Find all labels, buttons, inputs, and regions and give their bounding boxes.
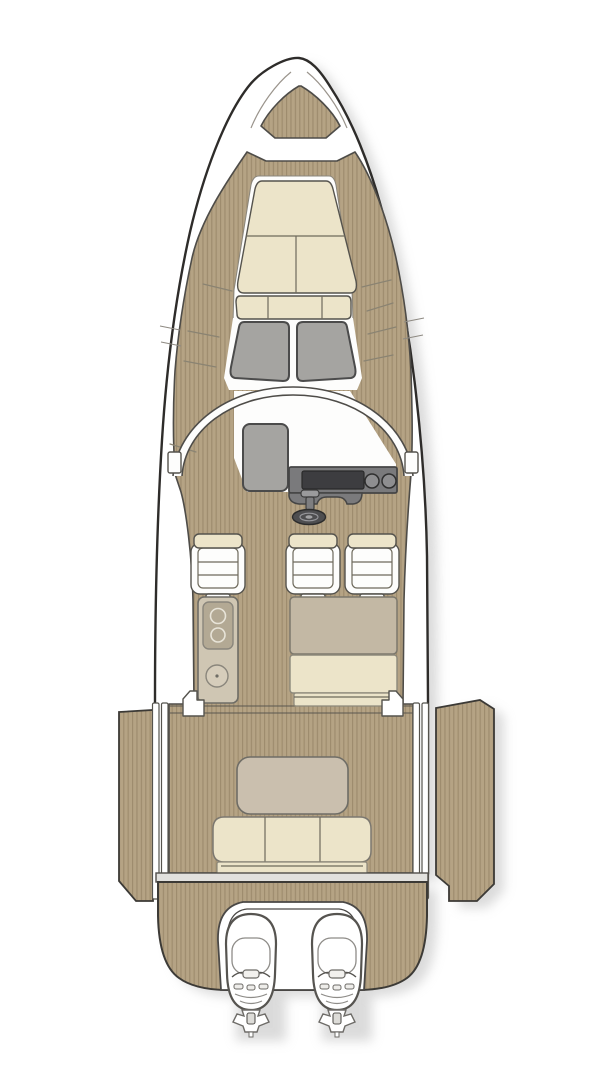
throttle-stem — [306, 497, 314, 510]
hinge-strip — [153, 703, 160, 899]
windshield-foot-left — [168, 452, 181, 473]
transom-rail — [156, 873, 428, 882]
side-terrace-left — [119, 710, 153, 901]
cockpit-bench-cushion — [290, 655, 397, 693]
stove-burner — [211, 609, 226, 624]
boat-deck-plan — [0, 0, 608, 1080]
steering-wheel-hub — [306, 515, 313, 519]
deck-plan-canvas — [0, 0, 608, 1080]
gauge-dial — [365, 474, 379, 488]
aft-bench — [213, 817, 371, 875]
stove-burner — [211, 628, 225, 642]
chartplotter-screen — [302, 471, 364, 489]
side-terrace-right — [436, 700, 494, 901]
cockpit-table — [237, 757, 348, 814]
gauge-dial — [382, 474, 396, 488]
windshield-foot-right — [405, 452, 418, 473]
throttle-lever — [301, 490, 319, 497]
aft-bench-cushion — [213, 817, 371, 862]
sink-drain — [215, 674, 218, 677]
companionway-hatch — [243, 424, 288, 491]
hinge-strip — [162, 703, 169, 899]
helm-seat-left — [191, 534, 245, 602]
cockpit-bench-backrest — [290, 597, 397, 654]
cockpit-bench-base — [294, 693, 393, 706]
helm-seat-center — [286, 534, 340, 602]
hinge-strip — [422, 703, 429, 899]
windshield-glass-right — [297, 322, 356, 381]
wetbar-galley — [198, 597, 238, 703]
sunpad-bolster — [236, 296, 351, 319]
hinge-strip — [413, 703, 420, 899]
cockpit-bench — [290, 597, 397, 706]
helm-seat-right — [345, 534, 399, 602]
windshield-glass-left — [231, 322, 290, 381]
